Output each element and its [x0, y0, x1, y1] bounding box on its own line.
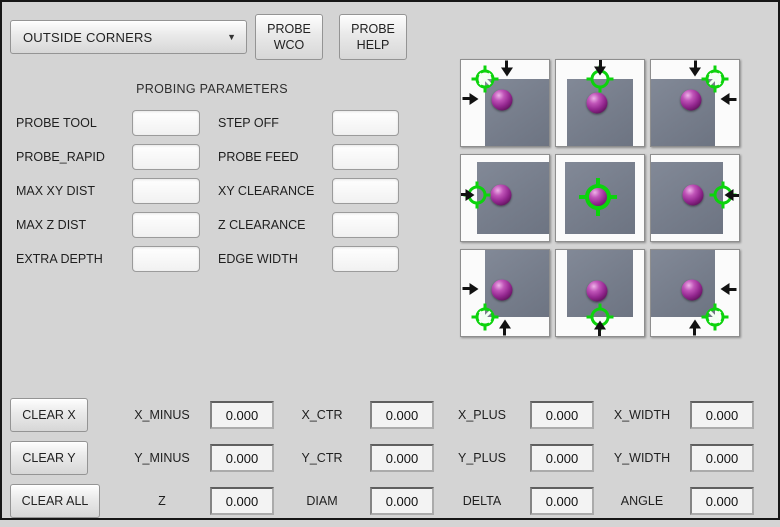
y-width-value: 0.000 [690, 444, 754, 472]
arrow-down-icon [499, 60, 515, 77]
probing-parameters-title: PROBING PARAMETERS [2, 82, 422, 96]
y-ctr-label: Y_CTR [274, 451, 370, 465]
param-label-probe-rapid: PROBE_RAPID [16, 150, 132, 164]
clear-x-button[interactable]: CLEAR X [10, 398, 88, 432]
clear-y-button[interactable]: CLEAR Y [10, 441, 88, 475]
diam-value: 0.000 [370, 487, 434, 515]
probe-sphere-icon [492, 90, 513, 111]
probe-sphere-icon [682, 280, 703, 301]
target-corner-icon [702, 65, 729, 92]
probe-wco-line2: WCO [274, 37, 305, 53]
param-label-extra-depth: EXTRA DEPTH [16, 252, 132, 266]
y-minus-label: Y_MINUS [114, 451, 210, 465]
target-center-icon [579, 178, 617, 216]
arrow-up-icon [687, 319, 703, 336]
probe-edge-bottom-button[interactable] [555, 249, 645, 337]
probe-corner-bottom-left-button[interactable] [460, 249, 550, 337]
probe-edge-left-button[interactable] [460, 154, 550, 242]
probe-edge-top-button[interactable] [555, 59, 645, 147]
probe-sphere-icon [490, 185, 511, 206]
probe-sphere-icon [587, 281, 608, 302]
target-corner-icon [471, 65, 498, 92]
results-row-x: CLEAR X X_MINUS 0.000 X_CTR 0.000 X_PLUS… [2, 398, 778, 432]
results-row-z: CLEAR ALL Z 0.000 DIAM 0.000 DELTA 0.000… [2, 484, 778, 518]
probing-parameters-form: PROBE TOOL STEP OFF PROBE_RAPID PROBE FE… [16, 109, 399, 273]
arrow-down-icon [687, 60, 703, 77]
z-label: Z [114, 494, 210, 508]
probe-help-button[interactable]: PROBE HELP [339, 14, 407, 60]
delta-label: DELTA [434, 494, 530, 508]
probe-screen: { "header": { "mode_dropdown": { "value"… [0, 0, 780, 520]
param-label-z-clearance: Z CLEARANCE [200, 218, 332, 232]
target-corner-icon [702, 304, 729, 331]
step-off-input[interactable] [332, 110, 399, 136]
param-label-xy-clearance: XY CLEARANCE [200, 184, 332, 198]
xy-clearance-input[interactable] [332, 178, 399, 204]
probe-help-line1: PROBE [351, 21, 395, 37]
edge-width-input[interactable] [332, 246, 399, 272]
probe-sphere-icon [492, 280, 513, 301]
probe-wco-line1: PROBE [267, 21, 311, 37]
arrow-up-icon [497, 319, 513, 336]
param-label-step-off: STEP OFF [200, 116, 332, 130]
probe-mode-dropdown[interactable]: OUTSIDE CORNERS ▼ [10, 20, 247, 54]
probe-tool-input[interactable] [132, 110, 200, 136]
y-minus-value: 0.000 [210, 444, 274, 472]
x-width-value: 0.000 [690, 401, 754, 429]
max-xy-dist-input[interactable] [132, 178, 200, 204]
x-plus-label: X_PLUS [434, 408, 530, 422]
extra-depth-input[interactable] [132, 246, 200, 272]
z-value: 0.000 [210, 487, 274, 515]
y-width-label: Y_WIDTH [594, 451, 690, 465]
arrow-right-icon [462, 281, 479, 297]
probe-corner-top-left-button[interactable] [460, 59, 550, 147]
x-plus-value: 0.000 [530, 401, 594, 429]
probe-edge-right-button[interactable] [650, 154, 740, 242]
target-corner-icon [471, 304, 498, 331]
clear-all-button[interactable]: CLEAR ALL [10, 484, 100, 518]
arrow-left-icon [720, 91, 737, 107]
param-label-max-xy-dist: MAX XY DIST [16, 184, 132, 198]
probe-corner-bottom-right-button[interactable] [650, 249, 740, 337]
chevron-down-icon: ▼ [227, 32, 236, 42]
probe-center-button[interactable] [555, 154, 645, 242]
param-label-probe-tool: PROBE TOOL [16, 116, 132, 130]
results-row-y: CLEAR Y Y_MINUS 0.000 Y_CTR 0.000 Y_PLUS… [2, 441, 778, 475]
probe-feed-input[interactable] [332, 144, 399, 170]
angle-value: 0.000 [690, 487, 754, 515]
arrow-left-icon [723, 187, 740, 203]
probe-sphere-icon [683, 185, 704, 206]
arrow-right-icon [462, 91, 479, 107]
probe-results-section: CLEAR X X_MINUS 0.000 X_CTR 0.000 X_PLUS… [2, 398, 778, 527]
delta-value: 0.000 [530, 487, 594, 515]
param-label-probe-feed: PROBE FEED [200, 150, 332, 164]
arrow-up-icon [592, 320, 608, 337]
arrow-right-icon [460, 187, 476, 203]
max-z-dist-input[interactable] [132, 212, 200, 238]
param-label-edge-width: EDGE WIDTH [200, 252, 332, 266]
angle-label: ANGLE [594, 494, 690, 508]
probe-sphere-icon [681, 90, 702, 111]
x-minus-value: 0.000 [210, 401, 274, 429]
probe-sphere-icon [587, 93, 608, 114]
diam-label: DIAM [274, 494, 370, 508]
probe-corner-top-right-button[interactable] [650, 59, 740, 147]
probe-wco-button[interactable]: PROBE WCO [255, 14, 323, 60]
x-ctr-value: 0.000 [370, 401, 434, 429]
x-ctr-label: X_CTR [274, 408, 370, 422]
arrow-down-icon [592, 59, 608, 76]
arrow-left-icon [720, 281, 737, 297]
x-width-label: X_WIDTH [594, 408, 690, 422]
param-label-max-z-dist: MAX Z DIST [16, 218, 132, 232]
y-plus-value: 0.000 [530, 444, 594, 472]
probe-help-line2: HELP [357, 37, 390, 53]
probe-mode-value: OUTSIDE CORNERS [23, 30, 227, 45]
z-clearance-input[interactable] [332, 212, 399, 238]
probe-position-grid [460, 59, 740, 337]
y-plus-label: Y_PLUS [434, 451, 530, 465]
x-minus-label: X_MINUS [114, 408, 210, 422]
probe-rapid-input[interactable] [132, 144, 200, 170]
y-ctr-value: 0.000 [370, 444, 434, 472]
